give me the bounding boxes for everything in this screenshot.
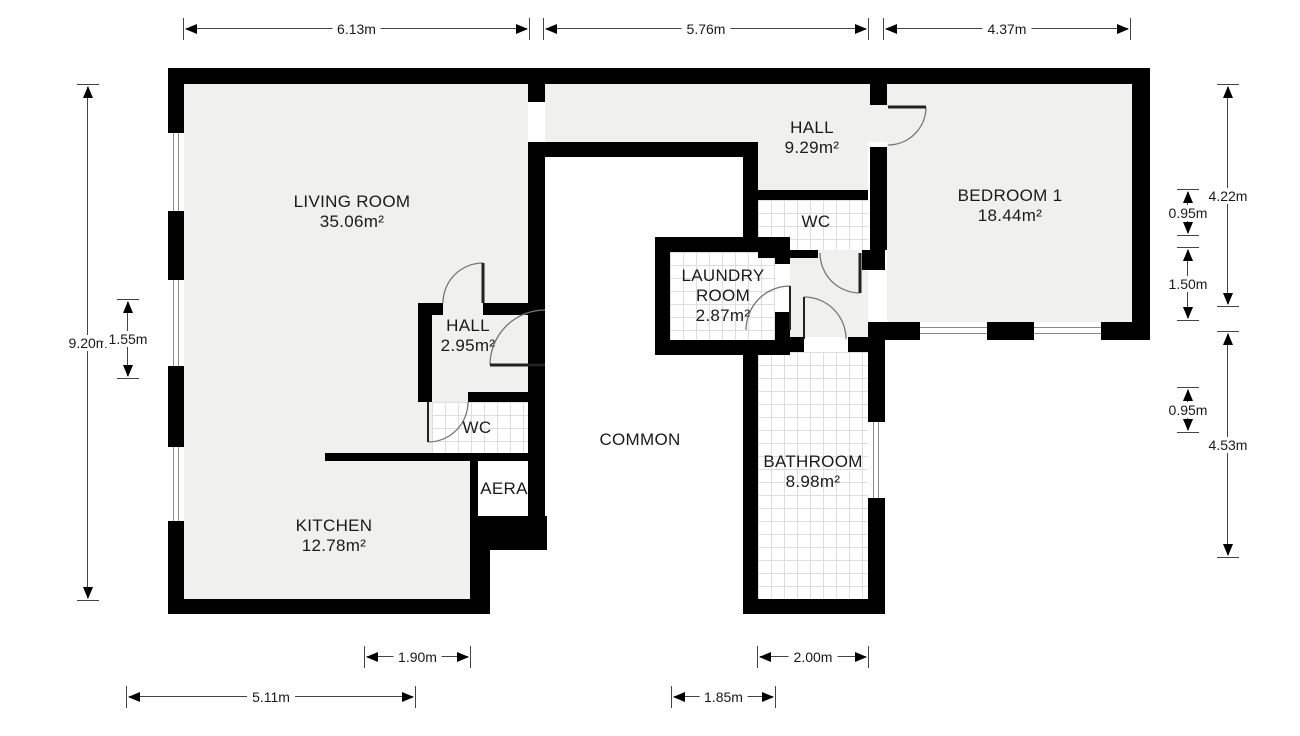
wall <box>870 147 887 250</box>
room-label-line: 12.78m² <box>296 536 373 556</box>
room-label-line: ROOM <box>681 286 764 306</box>
dimension-tick <box>883 18 884 40</box>
wall <box>758 250 818 258</box>
dimension-label: 4.22m <box>1204 188 1253 204</box>
wall <box>528 84 545 102</box>
dimension-label: 5.76m <box>682 21 731 37</box>
dimension-arrow-left <box>366 652 378 662</box>
wall <box>418 303 443 315</box>
dimension-arrow-down <box>83 587 93 599</box>
dimension-label: 1.85m <box>699 689 748 705</box>
room-label-line: WC <box>463 418 492 438</box>
dimension-tick <box>126 686 127 708</box>
wall <box>1132 68 1150 340</box>
wall <box>470 516 547 532</box>
wall <box>168 68 1150 84</box>
dimension-label: 4.37m <box>983 21 1032 37</box>
window-pane <box>178 133 179 211</box>
wall <box>470 531 490 614</box>
room-label-line: AERA <box>480 479 528 499</box>
dimension-label: 5.11m <box>247 689 295 705</box>
window <box>168 133 184 211</box>
room-label-line: KITCHEN <box>296 516 373 536</box>
dimension-tick <box>117 378 139 379</box>
wall <box>528 142 545 550</box>
room-label-bathroom: BATHROOM8.98m² <box>763 452 862 492</box>
dimension-tick <box>868 646 869 668</box>
dimension-arrow-down <box>123 365 133 377</box>
wall <box>743 599 885 614</box>
dimension-arrow-up <box>123 301 133 313</box>
dimension-arrow-down <box>1183 419 1193 431</box>
dimension-arrow-down <box>1183 222 1193 234</box>
floor-plan: LIVING ROOM35.06m²HALL9.29m²BEDROOM 118.… <box>0 0 1300 736</box>
dimension-arrow-up <box>1183 389 1193 401</box>
dimension-tick <box>1217 557 1239 558</box>
dimension-tick <box>1177 189 1199 190</box>
window-pane <box>173 447 174 521</box>
dimension-arrow-left <box>128 692 140 702</box>
room-label-line: WC <box>802 212 831 232</box>
dimension-arrow-up <box>1223 333 1233 345</box>
room-label-bedroom-1: BEDROOM 118.44m² <box>958 186 1063 226</box>
dimension-label: 1.90m <box>393 649 442 665</box>
wall <box>468 392 528 402</box>
dimension-label: 4.53m <box>1204 437 1253 453</box>
dimension-tick <box>671 686 672 708</box>
room-label-line: LAUNDRY <box>681 266 764 286</box>
dimension-arrow-up <box>83 86 93 98</box>
dimension-arrow-left <box>673 692 685 702</box>
dimension-arrow-left <box>885 24 897 34</box>
dimension-arrow-left <box>185 24 197 34</box>
dimension-tick <box>364 646 365 668</box>
wall <box>168 599 490 614</box>
dimension-arrow-right <box>1117 24 1129 34</box>
window <box>168 447 184 521</box>
dimension-tick <box>1130 18 1131 40</box>
dimension-tick <box>470 646 471 668</box>
room-label-living-room: LIVING ROOM35.06m² <box>294 192 411 232</box>
room-label-hall: HALL2.95m² <box>441 316 496 356</box>
dimension-tick <box>77 84 99 85</box>
dimension-label: 6.13m <box>332 21 381 37</box>
window-pane <box>920 333 987 334</box>
dimension-tick <box>868 18 869 40</box>
room-label-line: 2.95m² <box>441 336 496 356</box>
room-label-wc: WC <box>802 212 831 232</box>
window-pane <box>920 327 987 328</box>
wall <box>470 461 478 516</box>
dimension-arrow-down <box>1183 307 1193 319</box>
dimension-tick <box>543 18 544 40</box>
dimension-tick <box>529 18 530 40</box>
dimension-tick <box>183 18 184 40</box>
dimension-tick <box>775 686 776 708</box>
dimension-arrow-right <box>457 652 469 662</box>
dimension-tick <box>117 299 139 300</box>
room-label-hall: HALL9.29m² <box>785 118 840 158</box>
window <box>168 280 184 366</box>
wall <box>790 337 804 352</box>
dimension-arrow-down <box>1223 544 1233 556</box>
dimension-arrow-right <box>516 24 528 34</box>
room-label-line: BATHROOM <box>763 452 862 472</box>
window-pane <box>878 422 879 498</box>
dimension-label: 1.55m <box>104 331 153 347</box>
dimension-arrow-up <box>1183 191 1193 203</box>
window <box>920 322 987 340</box>
dimension-tick <box>1177 247 1199 248</box>
wall <box>655 340 790 355</box>
dimension-label: 0.95m <box>1164 205 1213 221</box>
room-label-kitchen: KITCHEN12.78m² <box>296 516 373 556</box>
dimension-tick <box>1177 320 1199 321</box>
room-label-common: COMMON <box>599 430 680 450</box>
room-label-line: 8.98m² <box>763 472 862 492</box>
dimension-tick <box>1217 306 1239 307</box>
room-label-line: 18.44m² <box>958 206 1063 226</box>
room-label-wc: WC <box>463 418 492 438</box>
wall <box>775 312 790 340</box>
window-pane <box>178 280 179 366</box>
window <box>868 422 885 498</box>
window <box>1034 322 1101 340</box>
room-label-line: LIVING ROOM <box>294 192 411 212</box>
dimension-arrow-up <box>1183 249 1193 261</box>
dimension-arrow-up <box>1223 86 1233 98</box>
wall <box>483 303 528 315</box>
wall <box>325 453 528 461</box>
room-label-line: HALL <box>785 118 840 138</box>
wall <box>870 84 887 105</box>
dimension-arrow-right <box>402 692 414 702</box>
window-pane <box>178 447 179 521</box>
room-floor <box>790 250 868 337</box>
wall <box>753 190 868 200</box>
wall <box>743 340 758 614</box>
dimension-tick <box>415 686 416 708</box>
window-pane <box>1034 333 1101 334</box>
wall <box>655 237 670 355</box>
room-label-line: 35.06m² <box>294 212 411 232</box>
window-pane <box>873 422 874 498</box>
window-pane <box>1034 327 1101 328</box>
room-label-line: HALL <box>441 316 496 336</box>
room-label-line: BEDROOM 1 <box>958 186 1063 206</box>
dimension-label: 0.95m <box>1164 402 1213 418</box>
dimension-arrow-right <box>855 24 867 34</box>
window-pane <box>173 280 174 366</box>
dimension-arrow-left <box>759 652 771 662</box>
dimension-tick <box>1177 387 1199 388</box>
dimension-tick <box>1217 331 1239 332</box>
window-pane <box>173 133 174 211</box>
dimension-tick <box>1177 235 1199 236</box>
dimension-label: 1.50m <box>1164 276 1213 292</box>
dimension-tick <box>1217 84 1239 85</box>
room-label-laundry-room: LAUNDRYROOM2.87m² <box>681 266 764 326</box>
dimension-arrow-right <box>855 652 867 662</box>
dimension-arrow-down <box>1223 293 1233 305</box>
room-label-line: 2.87m² <box>681 306 764 326</box>
dimension-tick <box>757 646 758 668</box>
room-label-line: COMMON <box>599 430 680 450</box>
wall <box>528 142 758 157</box>
wall <box>848 337 868 352</box>
dimension-tick <box>77 600 99 601</box>
wall <box>862 250 885 270</box>
wall <box>418 303 432 402</box>
dimension-label: 2.00m <box>789 649 838 665</box>
dimension-arrow-right <box>762 692 774 702</box>
room-label-line: 9.29m² <box>785 138 840 158</box>
dimension-tick <box>1177 432 1199 433</box>
room-label-aera: AERA <box>480 479 528 499</box>
dimension-arrow-left <box>545 24 557 34</box>
